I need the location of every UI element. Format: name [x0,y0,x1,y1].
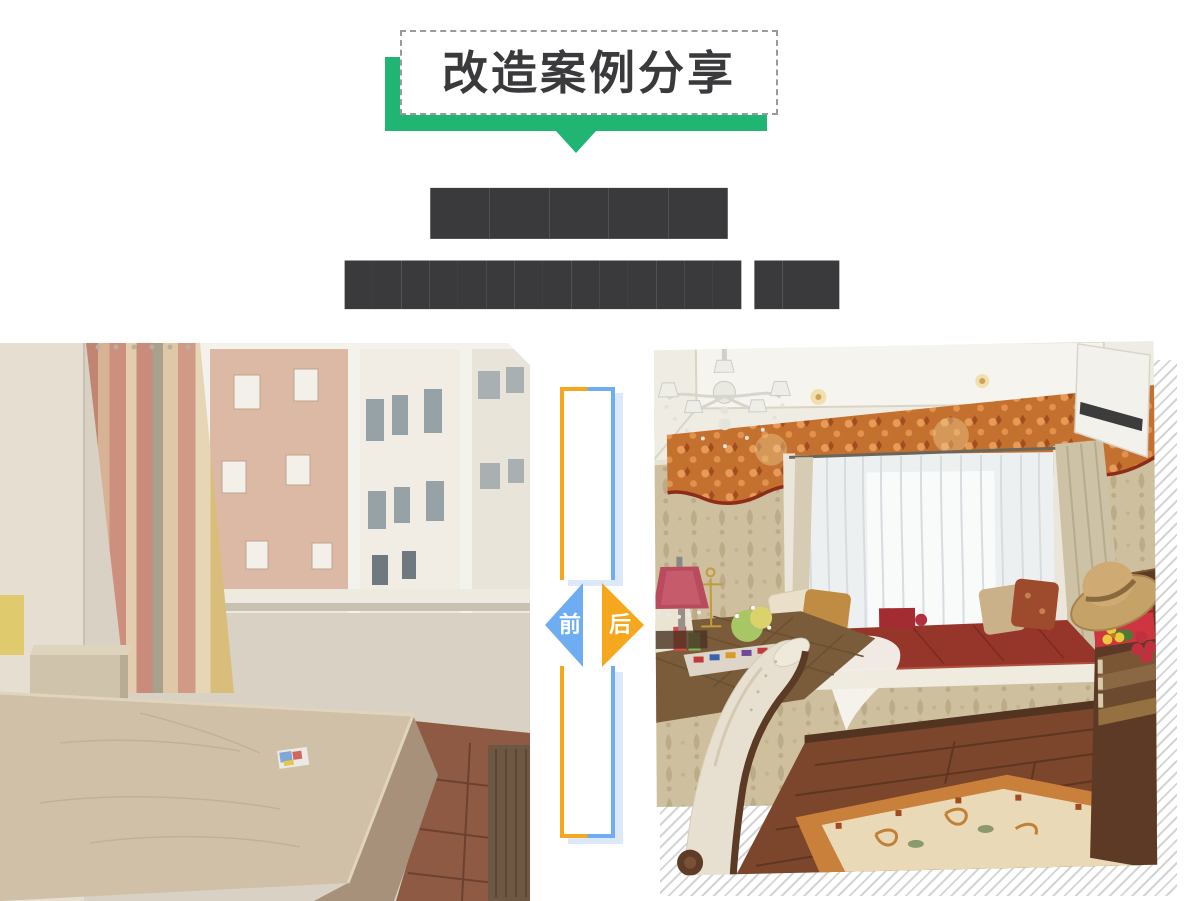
divider-frame-top-bar [560,387,615,391]
after-photo [650,341,1160,876]
case-title-redacted: ██████████ [0,191,1171,233]
badge-title-box: 改造案例分享 [400,30,778,115]
before-mattress [0,693,438,901]
divider-frame-left-bar [560,387,564,580]
case-subtitle-redacted: ██████████████ ███ [0,264,1184,304]
divider-frame-bottom [560,666,615,838]
case-subtitle-segment-2: ███ [754,264,839,304]
before-after-divider: 前 后 [545,383,647,843]
divider-frame-right-bar [611,666,615,838]
badge-title: 改造案例分享 [442,50,736,96]
badge-pointer-triangle [556,131,596,153]
before-window [190,343,530,613]
divider-frame-right-bar [611,387,615,580]
badge-green-ribbon-bottom [385,115,767,131]
divider-frame-left-bar [560,666,564,838]
divider-frame-bottom-bar [560,834,615,838]
before-photo [0,343,530,901]
divider-frame-top [560,387,615,580]
before-label: 前 [559,614,581,636]
after-label: 后 [609,614,631,636]
page: 改造案例分享 ██████████ ██████████████ ███ [0,0,1184,901]
case-subtitle-segment-1: ██████████████ [345,264,742,304]
